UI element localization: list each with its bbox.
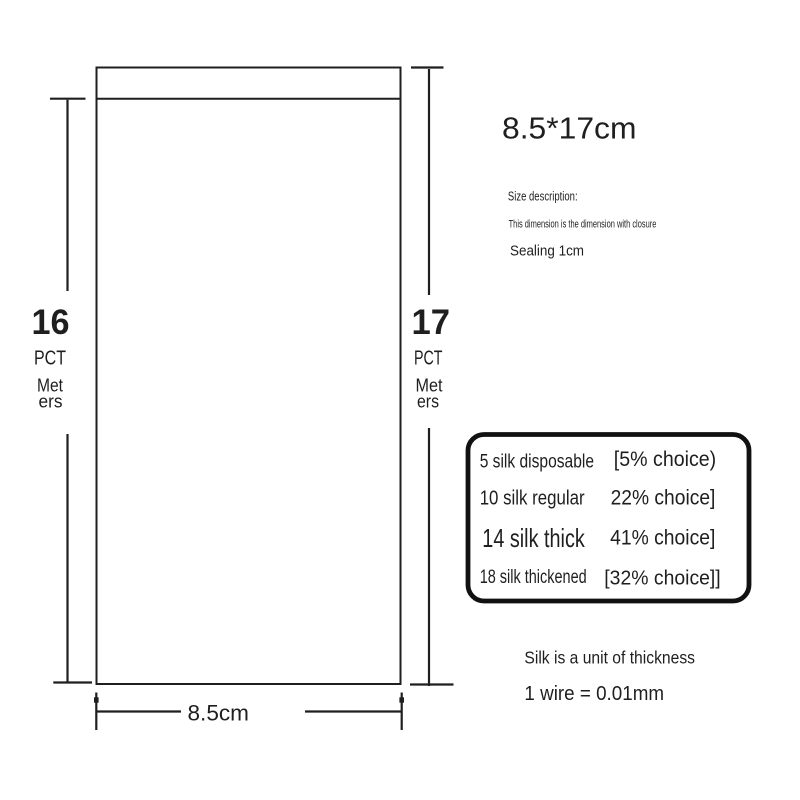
svg-text:5 silk disposable: 5 silk disposable [480,452,594,473]
svg-text:[32% choice]]: [32% choice]] [604,567,720,590]
svg-text:This dimension is the dimensio: This dimension is the dimension with clo… [509,218,657,230]
svg-text:1 wire = 0.01mm: 1 wire = 0.01mm [524,682,664,705]
svg-text:PCT: PCT [34,348,66,370]
svg-text:ers: ers [39,392,63,412]
svg-text:17: 17 [412,303,451,342]
svg-text:PCT: PCT [414,348,443,370]
svg-text:ers: ers [417,392,439,412]
svg-text:Size description:: Size description: [508,189,578,203]
svg-text:8.5cm: 8.5cm [188,701,250,726]
svg-text:8.5*17cm: 8.5*17cm [502,111,637,146]
svg-text:[5% choice): [5% choice) [614,448,716,471]
svg-text:18 silk thickened: 18 silk thickened [480,567,587,588]
svg-text:Sealing 1cm: Sealing 1cm [510,243,584,260]
svg-text:Silk is a unit of thickness: Silk is a unit of thickness [524,648,695,668]
svg-text:14 silk thick: 14 silk thick [482,523,585,553]
svg-text:16: 16 [32,303,70,342]
svg-text:41% choice]: 41% choice] [610,525,715,549]
svg-text:22% choice]: 22% choice] [611,485,716,509]
svg-text:10 silk regular: 10 silk regular [480,487,585,510]
